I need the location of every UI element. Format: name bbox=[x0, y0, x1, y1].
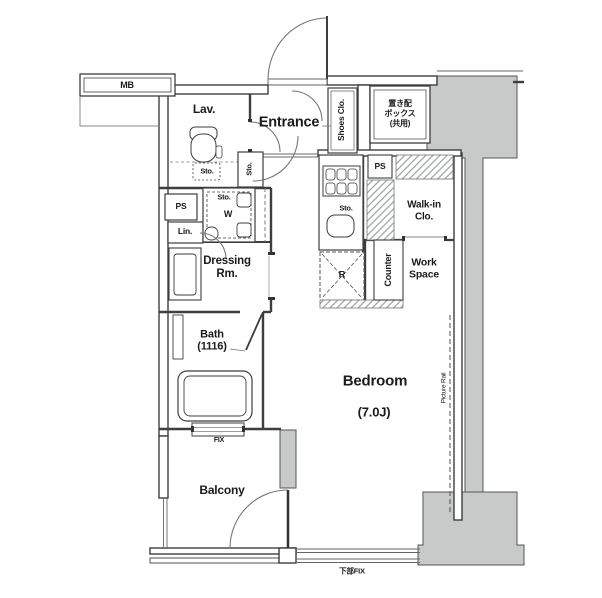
bath-label: Bath (1116) bbox=[197, 329, 226, 354]
picture-rail-label: Picture Rail bbox=[440, 373, 447, 404]
refrigerator-label: R bbox=[339, 271, 346, 282]
floorplan-drawing bbox=[0, 0, 602, 598]
front-door-swing bbox=[268, 18, 327, 80]
exterior-walls bbox=[80, 74, 462, 563]
pipe-space-left-label: PS bbox=[176, 202, 187, 212]
delivery-box-label: 置き配 ボックス (共用) bbox=[385, 99, 416, 129]
toilet-bowl bbox=[191, 134, 216, 162]
storage-lav-label: Sto. bbox=[200, 168, 213, 177]
kitchen-unit bbox=[319, 155, 363, 250]
floor-plan: MB Lav. Sto. Entrance Shoes Clo. 置き配 ボック… bbox=[0, 0, 602, 598]
walk-in-closet-label: Walk-in Clo. bbox=[407, 200, 441, 223]
balcony-label: Balcony bbox=[199, 484, 244, 498]
bedroom-label: Bedroom bbox=[343, 372, 407, 389]
meter-box-label: MB bbox=[120, 80, 134, 90]
pipe-space-right-label: PS bbox=[375, 162, 386, 172]
doors bbox=[200, 16, 331, 548]
dressing-room-label: Dressing Rm. bbox=[203, 255, 251, 281]
lavatory-label: Lav. bbox=[193, 103, 215, 117]
work-space-label: Work Space bbox=[409, 257, 439, 281]
entrance-label: Entrance bbox=[259, 115, 319, 132]
storage-closet-label: Sto. bbox=[217, 194, 230, 203]
counter-label: Counter bbox=[383, 253, 393, 286]
storage-kitchen-label: Sto. bbox=[339, 205, 352, 214]
shoes-closet-label: Shoes Clo. bbox=[337, 99, 347, 141]
washer-label: W bbox=[224, 209, 232, 219]
linen-label: Lin. bbox=[178, 227, 192, 237]
bath-counter bbox=[173, 315, 183, 359]
balcony-door-swing bbox=[230, 490, 288, 548]
fix-window-frame bbox=[192, 423, 244, 436]
bedroom-size-label: (7.0J) bbox=[358, 406, 391, 421]
kitchen-sink bbox=[327, 215, 354, 237]
bath-door bbox=[246, 314, 262, 350]
fix-window-label: FIX bbox=[214, 437, 224, 445]
storage-entrance-label: Sto. bbox=[246, 162, 255, 175]
bottom-fix-window-label: 下部FIX bbox=[339, 568, 365, 577]
